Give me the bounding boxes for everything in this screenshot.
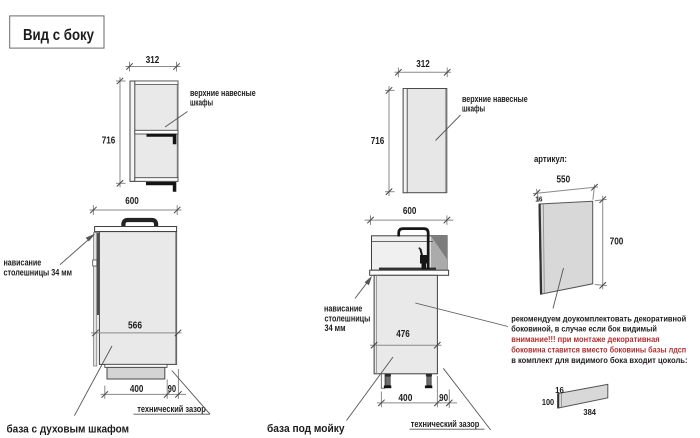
svg-text:90: 90 xyxy=(168,384,177,395)
svg-text:716: 716 xyxy=(102,136,116,147)
svg-text:600: 600 xyxy=(125,196,139,207)
svg-text:технический зазор: технический зазор xyxy=(137,404,206,414)
svg-text:Вид с боку: Вид с боку xyxy=(23,27,94,44)
svg-text:боковиной, в случае если бок в: боковиной, в случае если бок видимый xyxy=(511,324,657,334)
svg-text:400: 400 xyxy=(130,384,144,395)
svg-text:716: 716 xyxy=(371,136,385,147)
svg-text:566: 566 xyxy=(128,320,142,331)
svg-text:100: 100 xyxy=(542,397,555,407)
svg-text:312: 312 xyxy=(416,59,430,70)
svg-text:боковина ставится вместо боков: боковина ставится вместо боковины базы л… xyxy=(511,345,686,355)
svg-text:технический зазор: технический зазор xyxy=(411,419,480,429)
svg-text:476: 476 xyxy=(396,329,410,340)
svg-text:столешницы 34 мм: столешницы 34 мм xyxy=(4,268,73,278)
svg-text:600: 600 xyxy=(403,206,417,217)
svg-text:внимание!!! при монтаже декора: внимание!!! при монтаже декоративная xyxy=(511,334,660,344)
svg-text:в комплект для видимого бока в: в комплект для видимого бока входит цоко… xyxy=(511,355,687,365)
svg-text:312: 312 xyxy=(146,55,160,66)
svg-text:нависание: нависание xyxy=(4,257,42,267)
svg-text:384: 384 xyxy=(583,407,596,417)
svg-text:700: 700 xyxy=(610,236,624,247)
svg-text:артикул:: артикул: xyxy=(534,154,567,164)
svg-text:рекомендуем доукомплектовать д: рекомендуем доукомплектовать декоративно… xyxy=(511,313,686,323)
svg-text:столешницы: столешницы xyxy=(325,313,371,323)
svg-text:400: 400 xyxy=(398,393,412,404)
svg-text:16: 16 xyxy=(535,194,542,203)
svg-text:90: 90 xyxy=(439,393,448,404)
svg-text:шкафы: шкафы xyxy=(462,104,485,114)
svg-text:база под мойку: база под мойку xyxy=(267,423,345,435)
svg-text:16: 16 xyxy=(555,386,564,395)
svg-text:база с духовым шкафом: база с духовым шкафом xyxy=(7,424,130,436)
svg-text:нависание: нависание xyxy=(324,304,362,314)
svg-text:шкафы: шкафы xyxy=(190,97,213,107)
svg-text:34 мм: 34 мм xyxy=(325,323,346,333)
svg-text:550: 550 xyxy=(556,174,570,185)
